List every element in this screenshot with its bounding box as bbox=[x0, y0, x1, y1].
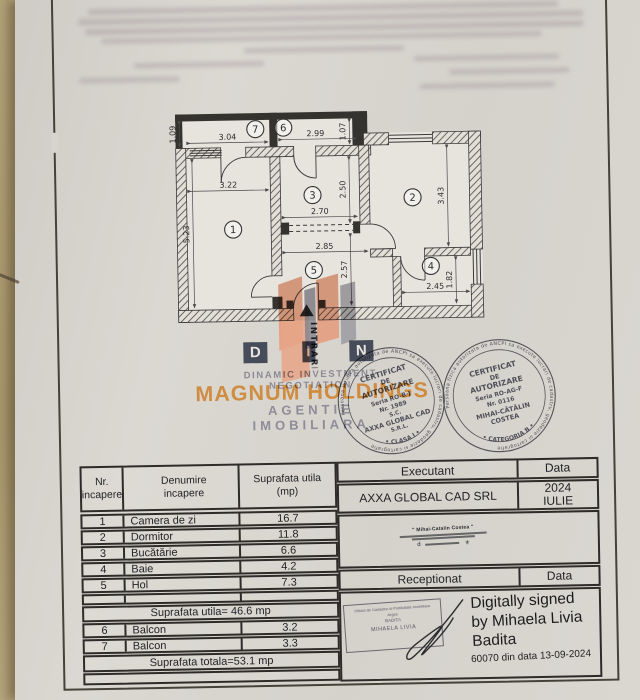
room-number-3: 3 bbox=[304, 186, 321, 203]
cell-name: Bucătărie bbox=[125, 545, 241, 558]
digitally-signed-text: Digitally signed by Mihaela Livia Badita bbox=[470, 590, 584, 652]
room-number-label: 7 bbox=[252, 125, 259, 136]
date-month: IULIE bbox=[543, 494, 573, 508]
header-text: incapere bbox=[82, 489, 123, 502]
logo-letter-i: I bbox=[302, 341, 315, 362]
cell-name: Baie bbox=[125, 561, 241, 574]
date-value: 2024 IULIE bbox=[519, 481, 597, 508]
executant-label: Executant bbox=[338, 460, 518, 480]
room-number-4: 4 bbox=[422, 257, 439, 274]
cell-area: 6.6 bbox=[241, 544, 336, 557]
room-number-label: 3 bbox=[309, 191, 316, 202]
room-number-7: 7 bbox=[247, 120, 264, 137]
dimension-label: 5.23 bbox=[182, 225, 191, 243]
logo-letter-d: D bbox=[243, 342, 267, 363]
cell-nr: 6 bbox=[84, 625, 126, 637]
dimension-label: 2.70 bbox=[311, 207, 329, 216]
dimension-label: 3.04 bbox=[218, 132, 236, 141]
receptionat-signature-box: Oficiul de Cadastru si Publicitate Imobi… bbox=[339, 587, 603, 682]
cell-nr: 2 bbox=[83, 532, 125, 544]
data-label: Data bbox=[518, 459, 596, 477]
room-number-2: 2 bbox=[404, 189, 421, 206]
digital-signature-micro: " Mihai-Catalin Costea " d ⚜ bbox=[385, 523, 501, 551]
cell-name: Balcon bbox=[126, 622, 242, 635]
cell-nr: 5 bbox=[84, 580, 126, 592]
dimension-label: 2.45 bbox=[426, 282, 444, 291]
table-header-row: Nr. incapere Denumire incapere Suprafata… bbox=[79, 462, 337, 513]
document-content: 1.09 3.04 2.99 1.07 3.22 5.23 2.70 2.50 … bbox=[0, 0, 640, 700]
executant-value-row: AXXA GLOBAL CAD SRL 2024 IULIE bbox=[337, 479, 600, 514]
header-text: incapere bbox=[164, 487, 205, 500]
header-text: (mp) bbox=[277, 485, 299, 498]
cell-area: 3.3 bbox=[243, 637, 338, 650]
cell-area: 16.7 bbox=[240, 512, 335, 525]
header-text: Denumire bbox=[161, 475, 207, 488]
certification-stamps: Persoana juridica autorizata de ANCPI sa… bbox=[327, 331, 574, 469]
cell-nr: 3 bbox=[83, 548, 125, 560]
cell-empty bbox=[242, 592, 337, 601]
dimension-label: 1.82 bbox=[445, 271, 454, 289]
logo-shape-gray bbox=[304, 287, 316, 349]
seal-icon: ⚜ bbox=[464, 539, 470, 546]
receptionat-label: Receptionat bbox=[340, 568, 520, 588]
micro-seal-row: d ⚜ bbox=[386, 537, 501, 550]
dimension-label: 1.07 bbox=[338, 123, 347, 141]
cell-area: 11.8 bbox=[241, 528, 336, 541]
dimension-label: 2.50 bbox=[338, 181, 347, 199]
room-number-label: 2 bbox=[409, 193, 416, 204]
signature-panel: Executant Data AXXA GLOBAL CAD SRL 2024 … bbox=[336, 457, 602, 682]
room-area-table: Nr. incapere Denumire incapere Suprafata… bbox=[79, 462, 340, 686]
executant-value: AXXA GLOBAL CAD SRL bbox=[339, 482, 519, 511]
stamp-axxa: Persoana juridica autorizata de ANCPI sa… bbox=[327, 334, 457, 466]
cell-name: Balcon bbox=[127, 638, 243, 651]
micro-text-line bbox=[426, 542, 460, 546]
data-label: Data bbox=[520, 567, 598, 585]
cell-area: 4.2 bbox=[241, 560, 336, 573]
room-number-label: 6 bbox=[280, 123, 287, 134]
dimension-label: 2.99 bbox=[306, 129, 324, 138]
photographed-document: 1.09 3.04 2.99 1.07 3.22 5.23 2.70 2.50 … bbox=[0, 0, 640, 700]
room-number-label: 1 bbox=[230, 225, 237, 236]
room-number-label: 4 bbox=[428, 261, 435, 272]
cell-nr: 4 bbox=[83, 564, 125, 576]
header-denumire: Denumire incapere bbox=[123, 465, 240, 509]
cell-name: Hol bbox=[126, 577, 242, 590]
cell-area: 7.3 bbox=[242, 576, 337, 589]
executant-signature-box: " Mihai-Catalin Costea " d ⚜ bbox=[337, 510, 600, 569]
dimension-label: 1.09 bbox=[168, 126, 177, 144]
dimension-label: 3.43 bbox=[436, 187, 445, 205]
header-nr: Nr. incapere bbox=[81, 468, 124, 511]
cell-nr: 1 bbox=[82, 516, 124, 528]
cell-nr: 7 bbox=[85, 641, 127, 653]
dimension-label: 3.22 bbox=[219, 180, 237, 189]
cell-area: 3.2 bbox=[242, 621, 337, 634]
cell-name: Dormitor bbox=[125, 529, 241, 542]
header-text: Suprafata utila bbox=[253, 472, 321, 486]
frame-line-gap bbox=[51, 133, 58, 153]
dimension-label: 2.85 bbox=[315, 242, 333, 251]
handwritten-signature bbox=[399, 591, 472, 672]
header-suprafata: Suprafata utila (mp) bbox=[239, 464, 335, 508]
logo-shape-orange bbox=[316, 274, 339, 344]
cell-empty bbox=[126, 593, 242, 602]
room-number-6: 6 bbox=[275, 119, 292, 136]
cell-empty bbox=[84, 596, 126, 604]
micro-letter: d bbox=[417, 542, 421, 548]
room-number-1: 1 bbox=[224, 221, 241, 238]
stamp-costea: Persoana fizica autorizata de ANCPI sa e… bbox=[431, 331, 567, 463]
header-text: Nr. bbox=[95, 476, 109, 489]
cell-name: Camera de zi bbox=[124, 513, 240, 526]
